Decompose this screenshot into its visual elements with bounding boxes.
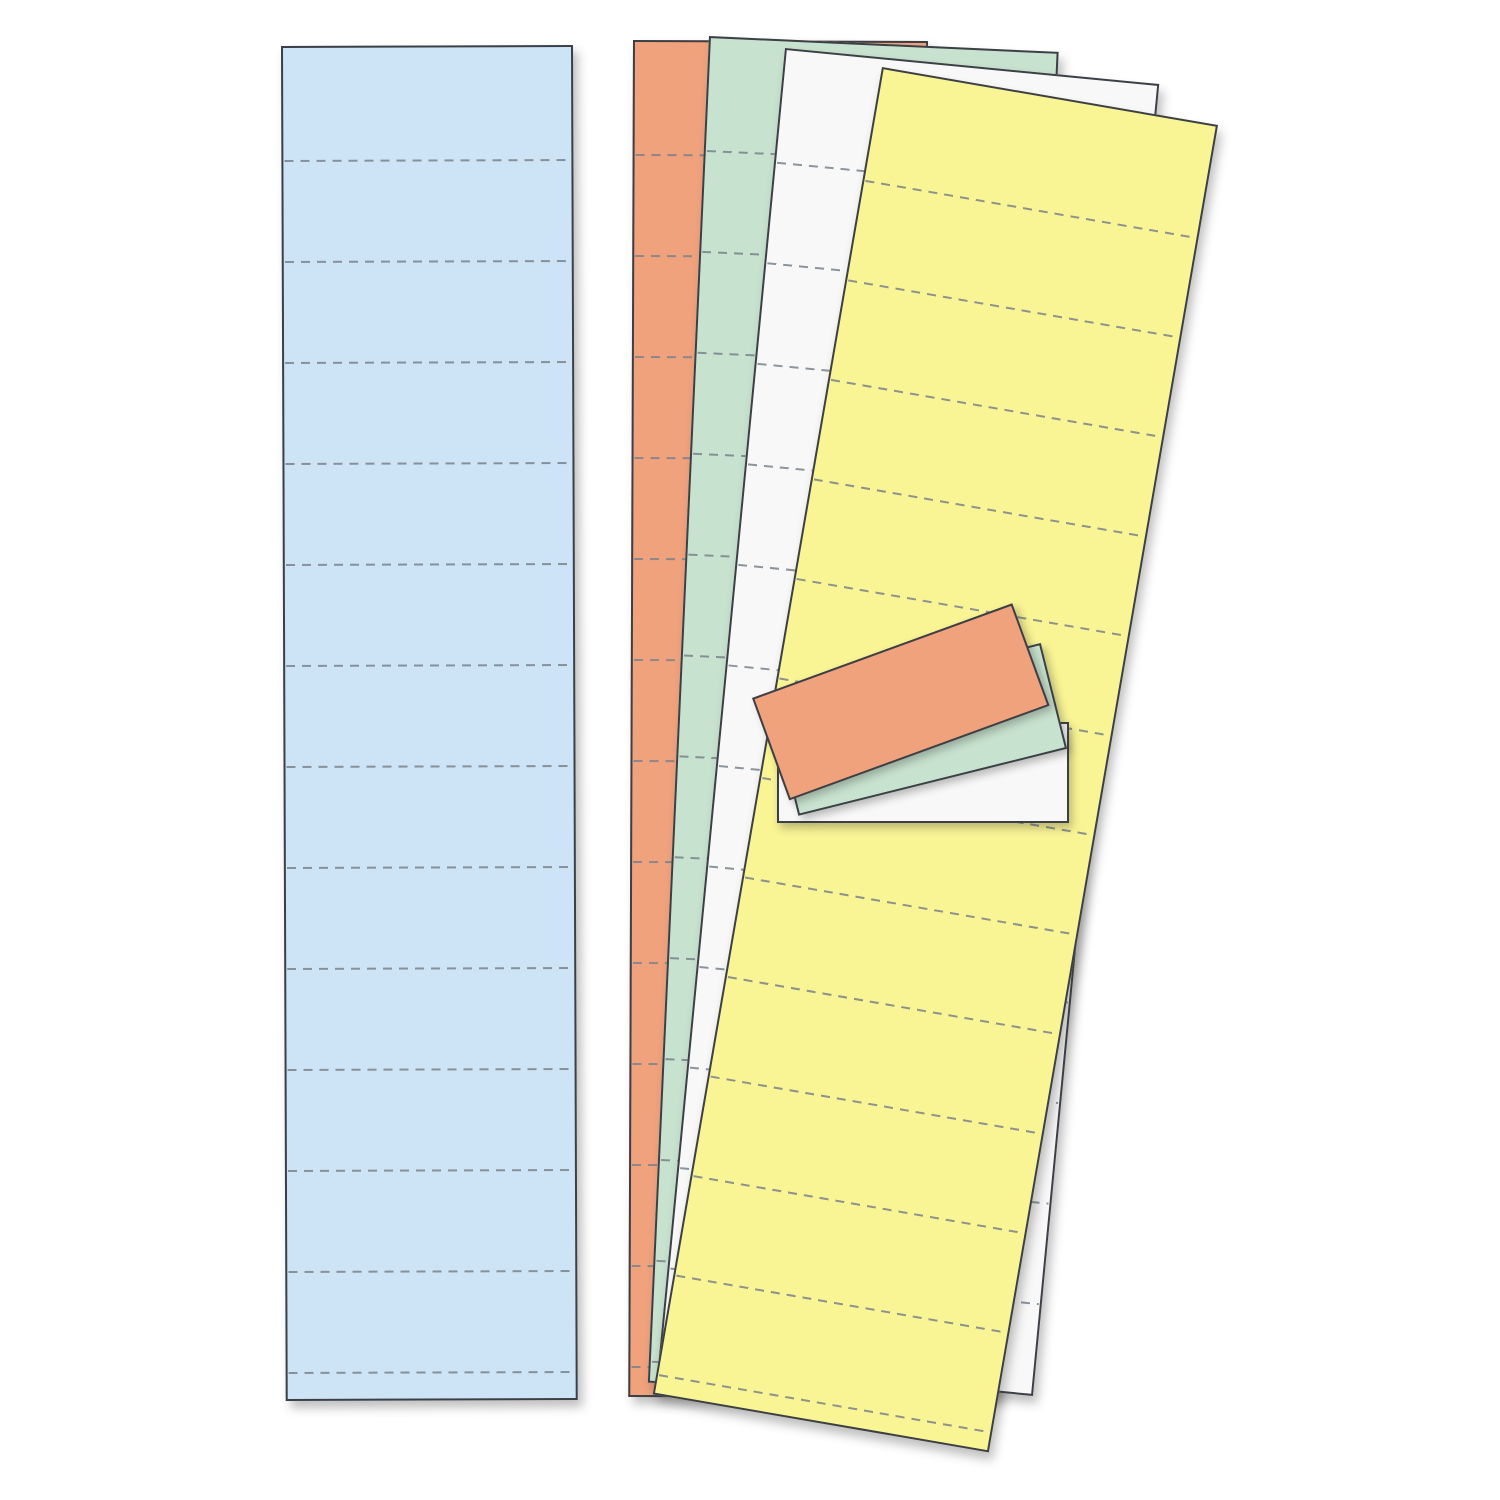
blue-strip-perforation-line — [286, 563, 572, 566]
blue-strip-perforation-line — [287, 765, 573, 768]
yellow-sheet-perforation-line — [728, 976, 1058, 1035]
blue-strip-perforation-line — [286, 664, 572, 667]
yellow-sheet-perforation-line — [710, 1076, 1040, 1135]
yellow-sheet-perforation-line — [693, 1175, 1023, 1234]
blue-strip-perforation-line — [288, 1169, 574, 1172]
yellow-sheet-perforation-line — [745, 877, 1075, 936]
yellow-sheet-perforation-line — [676, 1275, 1006, 1334]
blue-strip-perforation-line — [289, 1371, 575, 1374]
yellow-sheet-perforation-line — [831, 379, 1161, 438]
blue-strip-perforation-line — [287, 967, 573, 970]
yellow-sheet-perforation-line — [814, 478, 1144, 537]
blue-strip-perforation-line — [285, 260, 571, 263]
blue-strip-perforation-line — [285, 462, 571, 465]
yellow-sheet-perforation-line — [865, 180, 1195, 239]
yellow-sheet-perforation-line — [848, 279, 1178, 338]
blue-strip-perforation-line — [285, 361, 571, 364]
blue-strip-perforation-line — [288, 1068, 574, 1071]
blue-strip-perforation-line — [284, 159, 570, 162]
blue-strip — [281, 45, 578, 1401]
blue-strip-perforation-line — [288, 1270, 574, 1273]
yellow-sheet-perforation-line — [659, 1374, 989, 1433]
blue-strip-perforation-line — [287, 866, 573, 869]
product-photo — [0, 0, 1500, 1500]
